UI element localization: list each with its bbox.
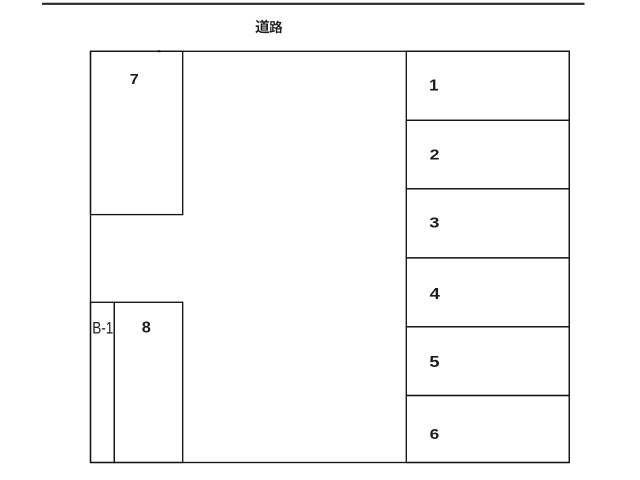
svg-text:2: 2 bbox=[430, 147, 440, 163]
svg-text:8: 8 bbox=[142, 319, 151, 337]
svg-text:3: 3 bbox=[429, 214, 439, 231]
svg-text:7: 7 bbox=[130, 72, 139, 88]
svg-text:6: 6 bbox=[430, 426, 440, 443]
svg-text:5: 5 bbox=[429, 353, 439, 370]
svg-text:B-1: B-1 bbox=[92, 319, 113, 338]
svg-text:4: 4 bbox=[430, 284, 441, 303]
svg-text:1: 1 bbox=[429, 77, 438, 95]
